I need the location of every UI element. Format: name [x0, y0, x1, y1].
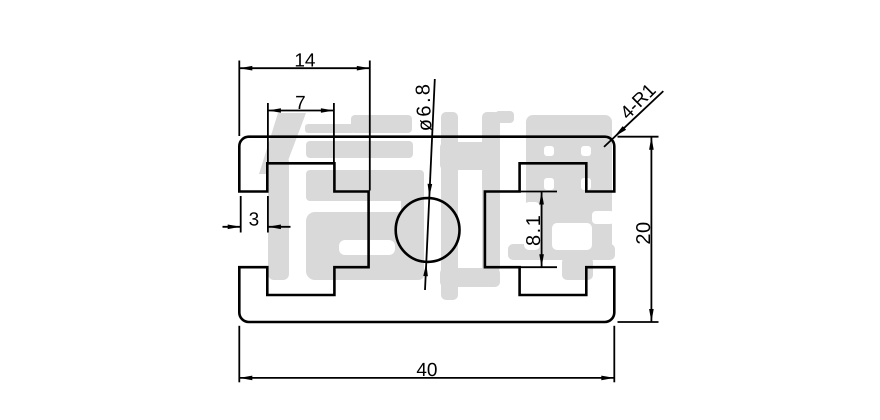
svg-text:8.1: 8.1 [523, 214, 545, 246]
svg-text:3: 3 [249, 209, 260, 230]
svg-text:7: 7 [295, 93, 306, 114]
svg-text:4-R1: 4-R1 [617, 80, 661, 124]
svg-text:20: 20 [633, 221, 655, 244]
svg-text:40: 40 [416, 360, 437, 381]
svg-text:ø6.8: ø6.8 [412, 81, 436, 132]
svg-text:14: 14 [294, 50, 316, 71]
